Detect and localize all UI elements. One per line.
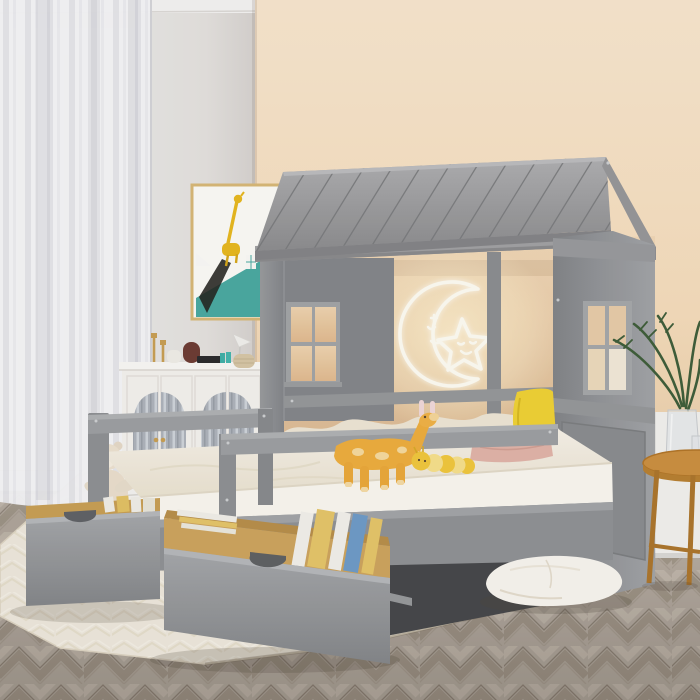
teal-book [220,353,225,363]
rail-post [258,409,273,505]
left-window [284,302,342,387]
teal-book [226,352,231,363]
kids-house-bed-photo: product-photo [0,0,700,700]
storage-drawer-left [26,496,160,606]
white-vase [167,350,181,363]
black-box [197,356,221,363]
round-basket [233,354,255,368]
giraffe-ear [419,400,424,417]
